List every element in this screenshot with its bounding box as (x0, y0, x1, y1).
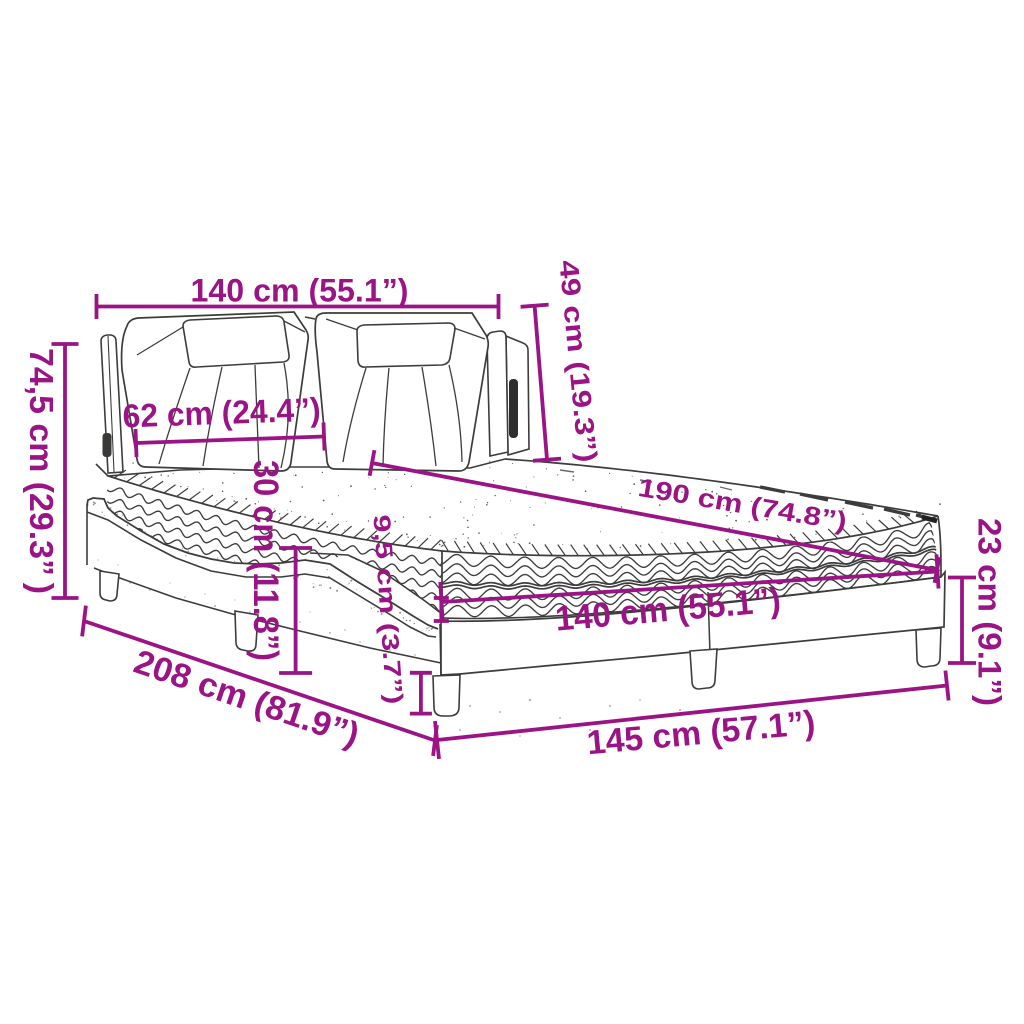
svg-text:23 cm (9.1”): 23 cm (9.1”) (972, 518, 1008, 706)
svg-text:74,5 cm (29.3” ): 74,5 cm (29.3” ) (23, 348, 60, 594)
svg-text:62 cm (24.4”): 62 cm (24.4”) (122, 391, 321, 435)
svg-text:30 cm (11.8”): 30 cm (11.8”) (246, 460, 285, 661)
svg-text:140 cm (55.1”): 140 cm (55.1”) (191, 273, 409, 309)
